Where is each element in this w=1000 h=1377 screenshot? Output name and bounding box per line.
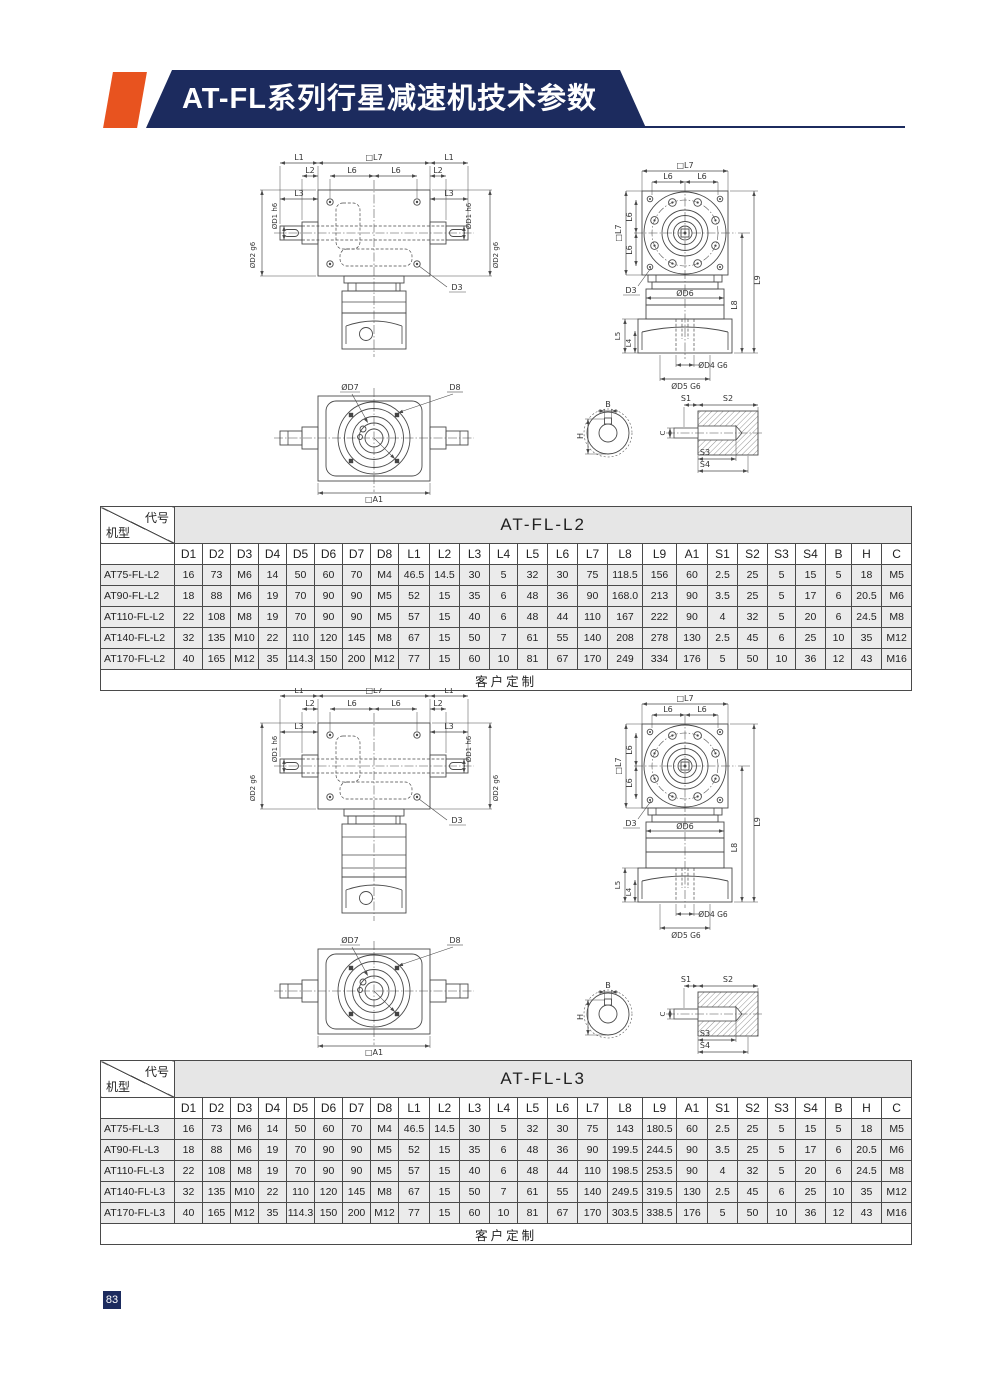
value-cell: 5 bbox=[768, 607, 796, 628]
value-cell: 67 bbox=[548, 1203, 578, 1224]
dim-label-l1: L1 bbox=[294, 153, 304, 162]
value-cell: 17 bbox=[796, 586, 826, 607]
value-cell: 6 bbox=[826, 586, 852, 607]
dim-label-d1: ØD1 h6 bbox=[465, 202, 473, 229]
value-cell: 67 bbox=[399, 628, 430, 649]
value-cell: 114.3 bbox=[287, 649, 315, 670]
dim-label-a1: □A1 bbox=[365, 1048, 383, 1057]
value-cell: 25 bbox=[738, 565, 768, 586]
value-cell: 110 bbox=[578, 1161, 608, 1182]
dim-label-l7: □L7 bbox=[365, 688, 382, 695]
value-cell: 5 bbox=[826, 1119, 852, 1140]
dim-label-l3: L3 bbox=[444, 189, 454, 198]
value-cell: M5 bbox=[882, 565, 912, 586]
column-header: D7 bbox=[343, 1098, 371, 1119]
column-header: L3 bbox=[460, 544, 490, 565]
value-cell: 208 bbox=[608, 628, 643, 649]
value-cell: M5 bbox=[371, 1161, 399, 1182]
column-header: S3 bbox=[768, 544, 796, 565]
parameter-table: 代号机型AT-FL-L2D1D2D3D4D5D6D7D8L1L2L3L4L5L6… bbox=[100, 506, 912, 691]
column-header: C bbox=[882, 544, 912, 565]
blank-cell bbox=[101, 1098, 175, 1119]
value-cell: 10 bbox=[768, 649, 796, 670]
value-cell: 20.5 bbox=[852, 586, 882, 607]
dim-label-l3: L3 bbox=[444, 722, 454, 731]
value-cell: 2.5 bbox=[708, 1182, 738, 1203]
value-cell: 176 bbox=[677, 649, 708, 670]
value-cell: 18 bbox=[175, 1140, 203, 1161]
value-cell: 222 bbox=[643, 607, 677, 628]
dim-label-l2: L2 bbox=[305, 699, 315, 708]
value-cell: M8 bbox=[231, 607, 259, 628]
dim-label-l9: L9 bbox=[753, 275, 762, 285]
value-cell: 45 bbox=[738, 628, 768, 649]
value-cell: M12 bbox=[371, 1203, 399, 1224]
value-cell: 199.5 bbox=[608, 1140, 643, 1161]
value-cell: 75 bbox=[578, 565, 608, 586]
column-header: L2 bbox=[430, 544, 460, 565]
value-cell: 278 bbox=[643, 628, 677, 649]
value-cell: M5 bbox=[371, 1140, 399, 1161]
value-cell: 30 bbox=[460, 565, 490, 586]
value-cell: 90 bbox=[578, 586, 608, 607]
value-cell: 70 bbox=[287, 586, 315, 607]
value-cell: 244.5 bbox=[643, 1140, 677, 1161]
value-cell: 46.5 bbox=[399, 565, 430, 586]
value-cell: 5 bbox=[768, 1161, 796, 1182]
value-cell: 6 bbox=[490, 607, 518, 628]
value-cell: 40 bbox=[175, 1203, 203, 1224]
value-cell: 20.5 bbox=[852, 1140, 882, 1161]
value-cell: 213 bbox=[643, 586, 677, 607]
value-cell: 249 bbox=[608, 649, 643, 670]
column-header: L8 bbox=[608, 1098, 643, 1119]
value-cell: 18 bbox=[175, 586, 203, 607]
dim-label-d2: ØD2 g6 bbox=[250, 241, 257, 268]
value-cell: 20 bbox=[796, 607, 826, 628]
dim-label-d3: D3 bbox=[625, 819, 636, 828]
dim-label-d5: ØD5 G6 bbox=[671, 382, 701, 391]
corner-label-model: 机型 bbox=[106, 1078, 130, 1095]
dimension-table-l3: 代号机型AT-FL-L3D1D2D3D4D5D6D7D8L1L2L3L4L5L6… bbox=[100, 1060, 906, 1245]
value-cell: 15 bbox=[430, 607, 460, 628]
value-cell: 15 bbox=[796, 565, 826, 586]
value-cell: 22 bbox=[259, 628, 287, 649]
column-header: D2 bbox=[203, 544, 231, 565]
value-cell: 10 bbox=[768, 1203, 796, 1224]
header-accent-shape bbox=[103, 72, 147, 128]
value-cell: 10 bbox=[826, 1182, 852, 1203]
value-cell: 81 bbox=[518, 1203, 548, 1224]
value-cell: 90 bbox=[343, 1161, 371, 1182]
column-header: D4 bbox=[259, 1098, 287, 1119]
value-cell: 50 bbox=[738, 649, 768, 670]
value-cell: 60 bbox=[460, 649, 490, 670]
value-cell: 75 bbox=[578, 1119, 608, 1140]
table-row: AT110-FL-L322108M819709090M5571540648441… bbox=[101, 1161, 912, 1182]
dim-label-l3: L3 bbox=[294, 189, 304, 198]
value-cell: 88 bbox=[203, 1140, 231, 1161]
value-cell: 25 bbox=[738, 586, 768, 607]
value-cell: 32 bbox=[738, 607, 768, 628]
value-cell: 90 bbox=[315, 586, 343, 607]
column-header: S1 bbox=[708, 544, 738, 565]
column-header: S1 bbox=[708, 1098, 738, 1119]
value-cell: 6 bbox=[826, 607, 852, 628]
value-cell: 25 bbox=[796, 628, 826, 649]
value-cell: 2.5 bbox=[708, 1119, 738, 1140]
column-header: L4 bbox=[490, 544, 518, 565]
value-cell: 52 bbox=[399, 586, 430, 607]
dim-label-s3: S3 bbox=[700, 1029, 710, 1038]
value-cell: M8 bbox=[882, 607, 912, 628]
value-cell: 50 bbox=[460, 628, 490, 649]
dim-label-l1: L1 bbox=[294, 688, 304, 695]
column-header: D8 bbox=[371, 1098, 399, 1119]
value-cell: 180.5 bbox=[643, 1119, 677, 1140]
value-cell: M16 bbox=[882, 649, 912, 670]
value-cell: 30 bbox=[548, 565, 578, 586]
dim-label-l6: L6 bbox=[625, 778, 634, 788]
value-cell: 40 bbox=[460, 607, 490, 628]
value-cell: M16 bbox=[882, 1203, 912, 1224]
value-cell: 12 bbox=[826, 649, 852, 670]
dim-label-l6: L6 bbox=[663, 172, 673, 181]
dim-label-c: C bbox=[659, 1011, 667, 1016]
value-cell: 36 bbox=[548, 1140, 578, 1161]
dim-label-l6: L6 bbox=[347, 699, 357, 708]
column-header: L5 bbox=[518, 1098, 548, 1119]
value-cell: 90 bbox=[677, 586, 708, 607]
column-header: L9 bbox=[643, 544, 677, 565]
value-cell: 32 bbox=[518, 1119, 548, 1140]
dim-label-s2: S2 bbox=[723, 394, 733, 403]
value-cell: 10 bbox=[826, 628, 852, 649]
dim-label-d1: ØD1 h6 bbox=[271, 202, 279, 229]
value-cell: M6 bbox=[231, 1119, 259, 1140]
value-cell: 14 bbox=[259, 1119, 287, 1140]
dim-label-l9: L9 bbox=[753, 817, 762, 827]
table-row: AT170-FL-L340165M1235114.3150200M1277156… bbox=[101, 1203, 912, 1224]
dim-label-l4: L4 bbox=[625, 887, 633, 896]
value-cell: 15 bbox=[430, 1182, 460, 1203]
dim-label-a1: □A1 bbox=[365, 495, 383, 504]
column-header: S2 bbox=[738, 544, 768, 565]
value-cell: 3.5 bbox=[708, 586, 738, 607]
value-cell: 114.3 bbox=[287, 1203, 315, 1224]
value-cell: 135 bbox=[203, 1182, 231, 1203]
technical-drawing-l3: L1□L7L1L2L6L6L2L3L3ØD1 h6ØD1 h6ØD2 g6ØD2… bbox=[250, 688, 810, 1060]
dim-label-d7: ØD7 bbox=[341, 935, 359, 945]
value-cell: 70 bbox=[343, 1119, 371, 1140]
value-cell: 90 bbox=[315, 607, 343, 628]
value-cell: 10 bbox=[490, 1203, 518, 1224]
value-cell: 70 bbox=[287, 1140, 315, 1161]
value-cell: 108 bbox=[203, 607, 231, 628]
value-cell: 90 bbox=[315, 1140, 343, 1161]
value-cell: M6 bbox=[231, 565, 259, 586]
value-cell: 7 bbox=[490, 628, 518, 649]
value-cell: M6 bbox=[882, 586, 912, 607]
value-cell: 130 bbox=[677, 628, 708, 649]
value-cell: 135 bbox=[203, 628, 231, 649]
dim-label-l1: L1 bbox=[444, 153, 454, 162]
dim-label-l6: L6 bbox=[391, 699, 401, 708]
value-cell: 46.5 bbox=[399, 1119, 430, 1140]
column-header: A1 bbox=[677, 1098, 708, 1119]
value-cell: 43 bbox=[852, 649, 882, 670]
value-cell: M8 bbox=[371, 628, 399, 649]
column-header: D3 bbox=[231, 1098, 259, 1119]
column-header: D6 bbox=[315, 544, 343, 565]
table-row: AT170-FL-L240165M1235114.3150200M1277156… bbox=[101, 649, 912, 670]
column-header: L7 bbox=[578, 544, 608, 565]
value-cell: 19 bbox=[259, 1161, 287, 1182]
dim-label-d4: ØD4 G6 bbox=[698, 910, 728, 919]
value-cell: M4 bbox=[371, 565, 399, 586]
value-cell: 35 bbox=[259, 649, 287, 670]
value-cell: 90 bbox=[677, 1140, 708, 1161]
value-cell: 50 bbox=[738, 1203, 768, 1224]
dim-label-l3: L3 bbox=[294, 722, 304, 731]
value-cell: 156 bbox=[643, 565, 677, 586]
dim-label-s3: S3 bbox=[700, 448, 710, 457]
column-header: L3 bbox=[460, 1098, 490, 1119]
value-cell: 4 bbox=[708, 607, 738, 628]
value-cell: 110 bbox=[287, 628, 315, 649]
value-cell: 60 bbox=[677, 1119, 708, 1140]
model-cell: AT90-FL-L2 bbox=[101, 586, 175, 607]
value-cell: 60 bbox=[315, 1119, 343, 1140]
value-cell: 90 bbox=[578, 1140, 608, 1161]
value-cell: 18 bbox=[852, 565, 882, 586]
value-cell: 120 bbox=[315, 628, 343, 649]
value-cell: 90 bbox=[343, 586, 371, 607]
value-cell: 22 bbox=[259, 1182, 287, 1203]
column-header: B bbox=[826, 1098, 852, 1119]
dim-label-d3: D3 bbox=[451, 816, 462, 825]
value-cell: 70 bbox=[287, 607, 315, 628]
value-cell: 18 bbox=[852, 1119, 882, 1140]
technical-drawing-l2: L1□L7L1L2L6L6L2L3L3ØD1 h6ØD1 h6ØD2 g6ØD2… bbox=[250, 143, 810, 515]
value-cell: 15 bbox=[430, 628, 460, 649]
value-cell: 35 bbox=[852, 1182, 882, 1203]
value-cell: 5 bbox=[708, 649, 738, 670]
column-header: B bbox=[826, 544, 852, 565]
value-cell: M6 bbox=[882, 1140, 912, 1161]
value-cell: 167 bbox=[608, 607, 643, 628]
value-cell: 61 bbox=[518, 1182, 548, 1203]
column-header: L8 bbox=[608, 544, 643, 565]
value-cell: 338.5 bbox=[643, 1203, 677, 1224]
value-cell: 22 bbox=[175, 607, 203, 628]
value-cell: 15 bbox=[430, 586, 460, 607]
dim-label-c: C bbox=[659, 430, 667, 435]
value-cell: M8 bbox=[371, 1182, 399, 1203]
column-header: C bbox=[882, 1098, 912, 1119]
value-cell: M4 bbox=[371, 1119, 399, 1140]
value-cell: 50 bbox=[287, 1119, 315, 1140]
column-header: D1 bbox=[175, 1098, 203, 1119]
dim-label-d4: ØD4 G6 bbox=[698, 361, 728, 370]
value-cell: 73 bbox=[203, 1119, 231, 1140]
value-cell: 198.5 bbox=[608, 1161, 643, 1182]
column-header: D2 bbox=[203, 1098, 231, 1119]
value-cell: 12 bbox=[826, 1203, 852, 1224]
parameter-table: 代号机型AT-FL-L3D1D2D3D4D5D6D7D8L1L2L3L4L5L6… bbox=[100, 1060, 912, 1245]
value-cell: 55 bbox=[548, 1182, 578, 1203]
dim-label-l7: □L7 bbox=[614, 224, 623, 241]
value-cell: 319.5 bbox=[643, 1182, 677, 1203]
value-cell: 5 bbox=[490, 1119, 518, 1140]
table-row: AT110-FL-L222108M819709090M5571540648441… bbox=[101, 607, 912, 628]
value-cell: 32 bbox=[175, 1182, 203, 1203]
dim-label-b: B bbox=[605, 400, 611, 409]
table-row: AT90-FL-L31888M619709090M552153564836901… bbox=[101, 1140, 912, 1161]
value-cell: 6 bbox=[490, 1140, 518, 1161]
column-header: S4 bbox=[796, 1098, 826, 1119]
value-cell: 5 bbox=[768, 1119, 796, 1140]
value-cell: 73 bbox=[203, 565, 231, 586]
table-row: AT90-FL-L21888M619709090M552153564836901… bbox=[101, 586, 912, 607]
value-cell: 40 bbox=[460, 1161, 490, 1182]
value-cell: 90 bbox=[315, 1161, 343, 1182]
dimension-table-l2: 代号机型AT-FL-L2D1D2D3D4D5D6D7D8L1L2L3L4L5L6… bbox=[100, 506, 906, 691]
column-header: L4 bbox=[490, 1098, 518, 1119]
model-cell: AT140-FL-L3 bbox=[101, 1182, 175, 1203]
value-cell: 35 bbox=[259, 1203, 287, 1224]
column-header: D7 bbox=[343, 544, 371, 565]
dim-label-l2: L2 bbox=[433, 699, 443, 708]
value-cell: 253.5 bbox=[643, 1161, 677, 1182]
footer-custom-cell: 客户定制 bbox=[101, 1224, 912, 1245]
dim-label-d2: ØD2 g6 bbox=[250, 774, 257, 801]
value-cell: 50 bbox=[287, 565, 315, 586]
dim-label-d5: ØD5 G6 bbox=[671, 931, 701, 940]
value-cell: 16 bbox=[175, 1119, 203, 1140]
column-header: H bbox=[852, 1098, 882, 1119]
model-cell: AT90-FL-L3 bbox=[101, 1140, 175, 1161]
value-cell: M8 bbox=[231, 1161, 259, 1182]
value-cell: 249.5 bbox=[608, 1182, 643, 1203]
value-cell: 25 bbox=[796, 1182, 826, 1203]
value-cell: 44 bbox=[548, 1161, 578, 1182]
value-cell: M12 bbox=[882, 628, 912, 649]
value-cell: M12 bbox=[882, 1182, 912, 1203]
value-cell: 14.5 bbox=[430, 565, 460, 586]
value-cell: 130 bbox=[677, 1182, 708, 1203]
value-cell: 24.5 bbox=[852, 1161, 882, 1182]
value-cell: 77 bbox=[399, 649, 430, 670]
column-header: S3 bbox=[768, 1098, 796, 1119]
value-cell: 24.5 bbox=[852, 607, 882, 628]
value-cell: 6 bbox=[490, 1161, 518, 1182]
value-cell: 48 bbox=[518, 586, 548, 607]
value-cell: 150 bbox=[315, 649, 343, 670]
value-cell: 36 bbox=[796, 649, 826, 670]
column-header: L6 bbox=[548, 544, 578, 565]
value-cell: 90 bbox=[343, 1140, 371, 1161]
value-cell: 170 bbox=[578, 649, 608, 670]
value-cell: 5 bbox=[768, 1140, 796, 1161]
value-cell: 165 bbox=[203, 649, 231, 670]
dim-label-d7: ØD7 bbox=[341, 382, 359, 392]
value-cell: M12 bbox=[231, 649, 259, 670]
dim-label-s1: S1 bbox=[681, 975, 691, 984]
value-cell: 110 bbox=[287, 1182, 315, 1203]
dim-label-l8: L8 bbox=[730, 300, 739, 310]
value-cell: 15 bbox=[430, 1140, 460, 1161]
value-cell: 110 bbox=[578, 607, 608, 628]
value-cell: 90 bbox=[677, 1161, 708, 1182]
value-cell: 140 bbox=[578, 1182, 608, 1203]
value-cell: 40 bbox=[175, 649, 203, 670]
model-cell: AT140-FL-L2 bbox=[101, 628, 175, 649]
value-cell: 120 bbox=[315, 1182, 343, 1203]
dim-label-l6: L6 bbox=[625, 212, 634, 222]
value-cell: M12 bbox=[371, 649, 399, 670]
value-cell: 45 bbox=[738, 1182, 768, 1203]
value-cell: 60 bbox=[460, 1203, 490, 1224]
value-cell: 14 bbox=[259, 565, 287, 586]
value-cell: 52 bbox=[399, 1140, 430, 1161]
value-cell: 81 bbox=[518, 649, 548, 670]
value-cell: 20 bbox=[796, 1161, 826, 1182]
value-cell: 67 bbox=[399, 1182, 430, 1203]
value-cell: M10 bbox=[231, 1182, 259, 1203]
dim-label-l6: L6 bbox=[697, 705, 707, 714]
value-cell: 5 bbox=[826, 565, 852, 586]
corner-label-model: 机型 bbox=[106, 524, 130, 541]
value-cell: 19 bbox=[259, 607, 287, 628]
value-cell: 150 bbox=[315, 1203, 343, 1224]
value-cell: M8 bbox=[882, 1161, 912, 1182]
value-cell: 55 bbox=[548, 628, 578, 649]
value-cell: 70 bbox=[343, 565, 371, 586]
value-cell: 15 bbox=[430, 1161, 460, 1182]
model-cell: AT110-FL-L2 bbox=[101, 607, 175, 628]
value-cell: 176 bbox=[677, 1203, 708, 1224]
value-cell: 43 bbox=[852, 1203, 882, 1224]
dim-label-l6: L6 bbox=[391, 166, 401, 175]
column-header: L1 bbox=[399, 544, 430, 565]
value-cell: 19 bbox=[259, 1140, 287, 1161]
value-cell: 35 bbox=[460, 1140, 490, 1161]
value-cell: 2.5 bbox=[708, 628, 738, 649]
corner-label-code: 代号 bbox=[145, 509, 169, 526]
value-cell: 10 bbox=[490, 649, 518, 670]
value-cell: M5 bbox=[371, 607, 399, 628]
value-cell: 6 bbox=[490, 586, 518, 607]
value-cell: 32 bbox=[518, 565, 548, 586]
value-cell: 145 bbox=[343, 1182, 371, 1203]
model-cell: AT170-FL-L3 bbox=[101, 1203, 175, 1224]
value-cell: 15 bbox=[796, 1119, 826, 1140]
value-cell: 25 bbox=[738, 1140, 768, 1161]
value-cell: 90 bbox=[677, 607, 708, 628]
value-cell: 3.5 bbox=[708, 1140, 738, 1161]
corner-diagonal-cell: 代号机型 bbox=[101, 1061, 175, 1098]
table-row: AT75-FL-L21673M614506070M446.514.5305323… bbox=[101, 565, 912, 586]
value-cell: 108 bbox=[203, 1161, 231, 1182]
value-cell: 5 bbox=[768, 565, 796, 586]
value-cell: 19 bbox=[259, 586, 287, 607]
value-cell: 88 bbox=[203, 586, 231, 607]
corner-diagonal-cell: 代号机型 bbox=[101, 507, 175, 544]
value-cell: 90 bbox=[343, 607, 371, 628]
value-cell: M5 bbox=[882, 1119, 912, 1140]
column-header: D5 bbox=[287, 544, 315, 565]
